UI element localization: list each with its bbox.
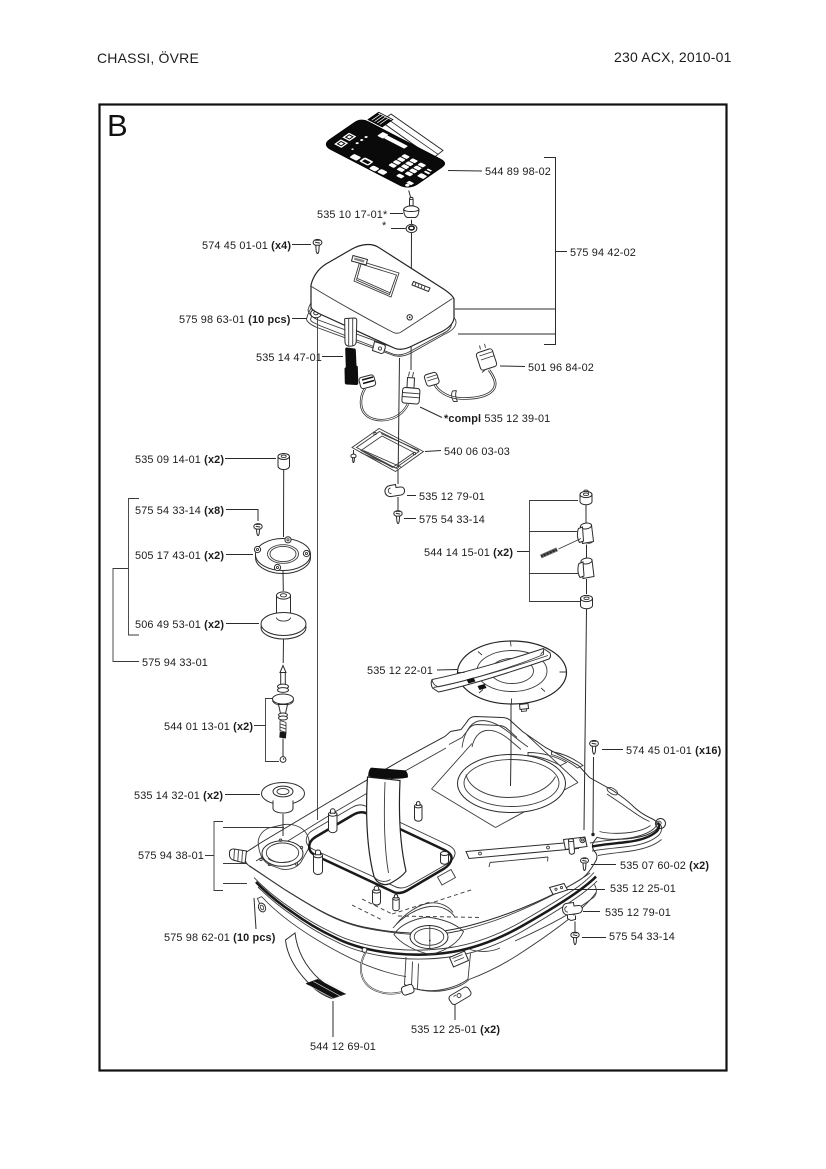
svg-text:575 54 33-14: 575 54 33-14: [609, 931, 675, 943]
svg-text:575 54 33-14: 575 54 33-14: [419, 514, 485, 526]
svg-text:505 17 43-01 (x2): 505 17 43-01 (x2): [135, 550, 224, 562]
svg-text:*: *: [382, 220, 387, 232]
svg-text:535 07 60-02 (x2): 535 07 60-02 (x2): [620, 860, 709, 872]
svg-text:230 ACX, 2010-01: 230 ACX, 2010-01: [614, 49, 732, 65]
svg-text:544 14 15-01 (x2): 544 14 15-01 (x2): [424, 547, 513, 559]
svg-text:535 12 25-01 (x2): 535 12 25-01 (x2): [411, 1024, 500, 1036]
svg-text:535 09 14-01 (x2): 535 09 14-01 (x2): [135, 454, 224, 466]
svg-text:535 12 79-01: 535 12 79-01: [419, 491, 485, 503]
svg-text:575 94 38-01: 575 94 38-01: [138, 850, 204, 862]
svg-text:544 89 98-02: 544 89 98-02: [485, 166, 551, 178]
svg-text:*compl 535 12 39-01: *compl 535 12 39-01: [444, 413, 550, 425]
svg-text:575 54 33-14 (x8): 575 54 33-14 (x8): [135, 505, 224, 517]
svg-text:B: B: [107, 108, 128, 143]
svg-text:535 10 17-01*: 535 10 17-01*: [317, 209, 388, 221]
svg-text:CHASSI, ÖVRE: CHASSI, ÖVRE: [97, 49, 199, 66]
svg-text:544 01 13-01 (x2): 544 01 13-01 (x2): [164, 721, 253, 733]
svg-text:544 12 69-01: 544 12 69-01: [310, 1041, 376, 1053]
svg-text:575 94 33-01: 575 94 33-01: [142, 657, 208, 669]
svg-text:506 49 53-01 (x2): 506 49 53-01 (x2): [135, 619, 224, 631]
svg-text:535 12 22-01: 535 12 22-01: [367, 665, 433, 677]
svg-text:535 12 25-01: 535 12 25-01: [610, 883, 676, 895]
svg-text:575 98 62-01 (10 pcs): 575 98 62-01 (10 pcs): [164, 932, 276, 944]
svg-text:535 14 47-01: 535 14 47-01: [256, 352, 322, 364]
svg-text:501 96 84-02: 501 96 84-02: [528, 362, 594, 374]
svg-text:574 45 01-01 (x4): 574 45 01-01 (x4): [202, 240, 291, 252]
svg-text:535 14 32-01 (x2): 535 14 32-01 (x2): [134, 790, 223, 802]
svg-text:575 94 42-02: 575 94 42-02: [570, 247, 636, 259]
svg-text:574 45 01-01 (x16): 574 45 01-01 (x16): [626, 745, 722, 757]
svg-text:540 06 03-03: 540 06 03-03: [444, 446, 510, 458]
svg-text:535 12 79-01: 535 12 79-01: [605, 907, 671, 919]
svg-text:575 98 63-01 (10 pcs): 575 98 63-01 (10 pcs): [179, 314, 291, 326]
